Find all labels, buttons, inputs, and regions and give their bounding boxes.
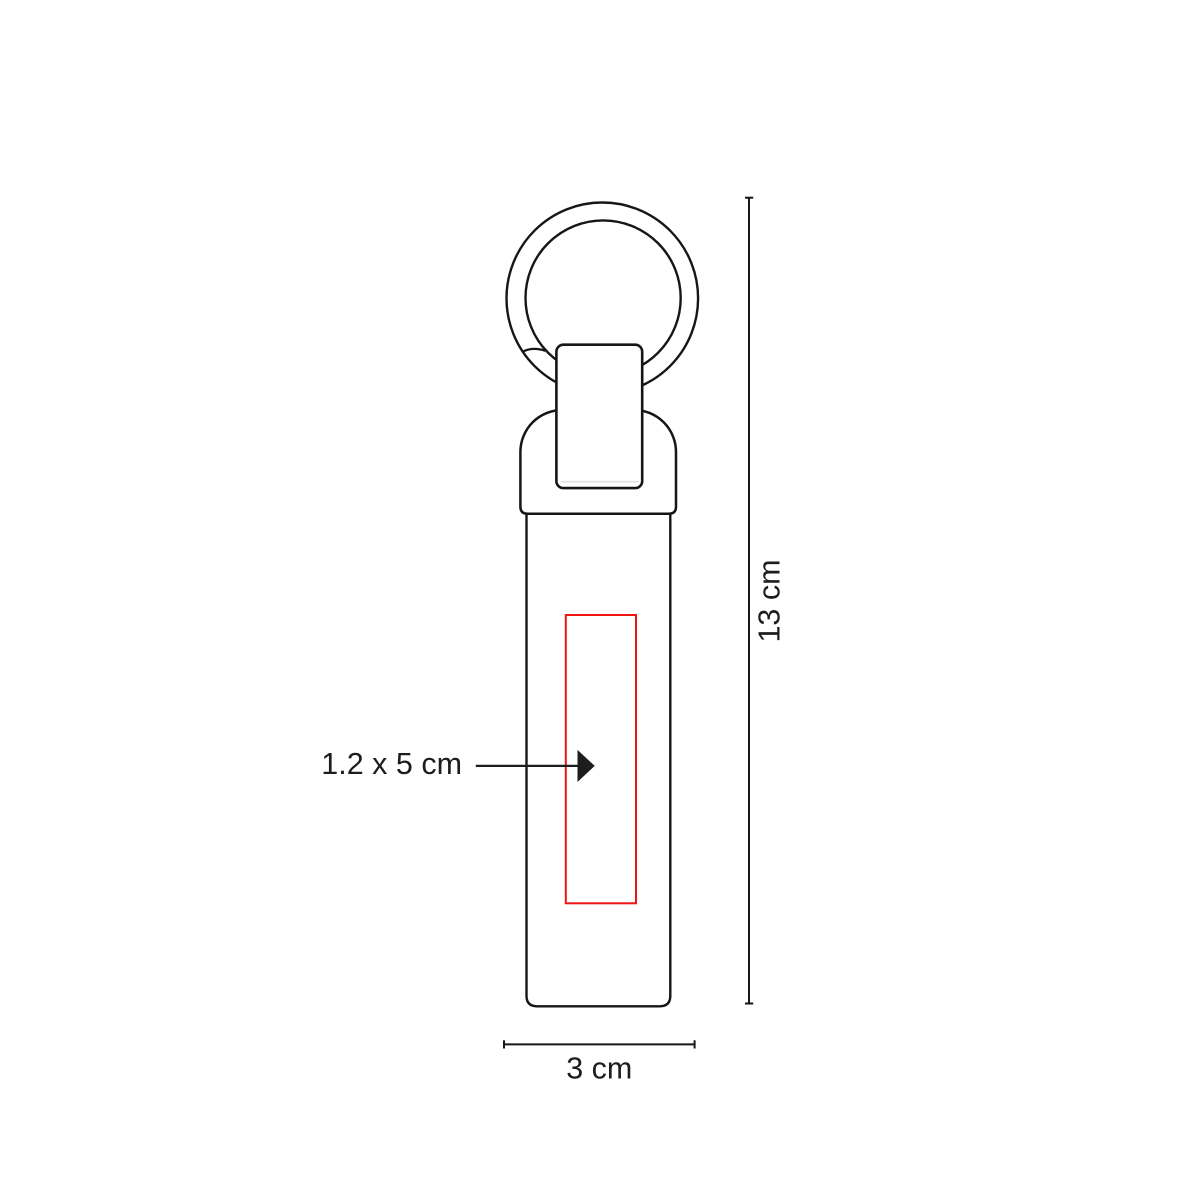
svg-text:13 cm: 13 cm — [753, 559, 787, 642]
svg-text:3 cm: 3 cm — [566, 1051, 632, 1085]
svg-text:1.2 x 5 cm: 1.2 x 5 cm — [321, 747, 462, 781]
